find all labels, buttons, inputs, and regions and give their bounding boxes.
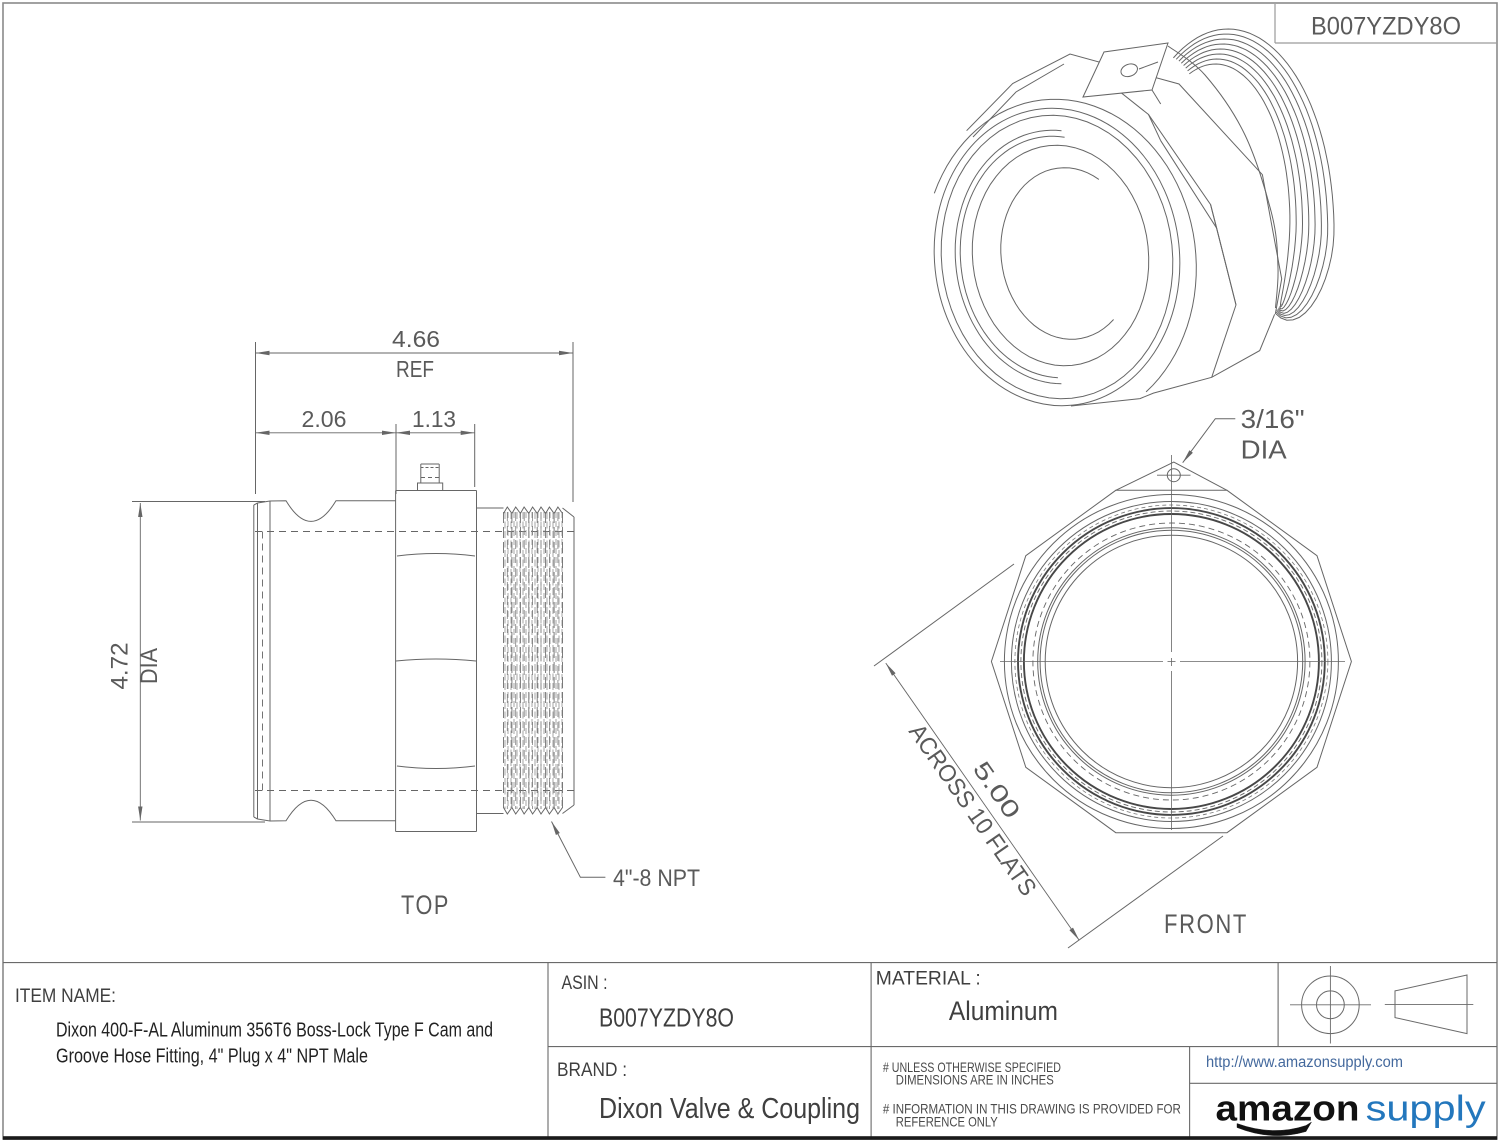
svg-text:DIA: DIA bbox=[1241, 435, 1288, 465]
svg-text:supply: supply bbox=[1366, 1088, 1486, 1129]
svg-text:Dixon Valve & Coupling: Dixon Valve & Coupling bbox=[599, 1093, 860, 1125]
svg-text:DIMENSIONS ARE IN INCHES: DIMENSIONS ARE IN INCHES bbox=[896, 1072, 1054, 1088]
svg-text:4"-8 NPT: 4"-8 NPT bbox=[613, 865, 700, 892]
svg-text:ITEM NAME:: ITEM NAME: bbox=[15, 986, 116, 1007]
svg-text:amazon: amazon bbox=[1216, 1088, 1360, 1129]
svg-text:2.06: 2.06 bbox=[302, 406, 347, 432]
svg-text:FRONT: FRONT bbox=[1164, 909, 1248, 939]
svg-text:BRAND :: BRAND : bbox=[557, 1060, 627, 1081]
svg-text:4.72: 4.72 bbox=[107, 643, 134, 690]
svg-text:B007YZDY8O: B007YZDY8O bbox=[599, 1003, 734, 1033]
svg-text:TOP: TOP bbox=[401, 890, 450, 920]
svg-text:REF: REF bbox=[396, 356, 434, 382]
svg-text:1.13: 1.13 bbox=[412, 406, 456, 432]
svg-text:REFERENCE ONLY: REFERENCE ONLY bbox=[896, 1113, 999, 1129]
svg-text:ASIN :: ASIN : bbox=[562, 973, 608, 994]
svg-text:MATERIAL :: MATERIAL : bbox=[876, 968, 981, 989]
svg-text:Aluminum: Aluminum bbox=[949, 996, 1058, 1026]
svg-text:DIA: DIA bbox=[136, 648, 163, 684]
svg-text:B007YZDY8O: B007YZDY8O bbox=[1311, 13, 1461, 41]
svg-text:Dixon 400-F-AL Aluminum 356T6: Dixon 400-F-AL Aluminum 356T6 Boss-Lock … bbox=[56, 1019, 493, 1042]
svg-text:http://www.amazonsupply.com: http://www.amazonsupply.com bbox=[1206, 1054, 1403, 1071]
svg-text:Groove Hose Fitting, 4" Plug x: Groove Hose Fitting, 4" Plug x 4" NPT Ma… bbox=[56, 1045, 368, 1068]
svg-text:3/16": 3/16" bbox=[1241, 404, 1305, 434]
svg-text:4.66: 4.66 bbox=[392, 326, 440, 352]
